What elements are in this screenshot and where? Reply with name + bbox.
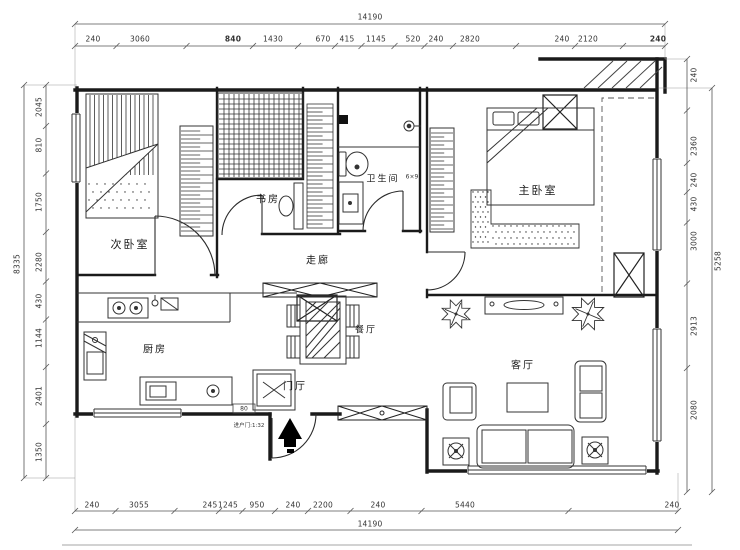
interior-walls [77, 88, 657, 297]
bed-master [487, 108, 594, 205]
floor-plan-page: 次卧室书房卫生间主卧室走廊餐厅厨房门厅客厅进户门:1:32806×9141902… [0, 0, 740, 550]
shoe-cabinet [338, 406, 427, 420]
wardrobe-master [430, 128, 454, 232]
door-master-bedroom [427, 252, 465, 290]
window-bottom-kitchen [93, 408, 182, 419]
floor-plan-drawing [0, 0, 740, 550]
living-furniture [443, 297, 608, 468]
bathroom-fixtures [338, 115, 421, 224]
curtain-dashed [602, 98, 656, 292]
kitchen-faucet-icon [152, 295, 158, 306]
study-desk [294, 183, 303, 229]
plant-left-icon [442, 300, 470, 328]
wardrobe-secondary [180, 126, 213, 236]
end-table-right [582, 437, 608, 464]
kitchen-fixtures [77, 293, 297, 410]
window-right-master [651, 158, 663, 251]
dim-80-box [233, 404, 255, 413]
side-sofa [575, 361, 606, 422]
shower-head-icon [404, 121, 421, 131]
coffee-table [507, 383, 548, 412]
study-chair [279, 196, 293, 216]
window-right-living [651, 328, 663, 442]
fridge-icon [253, 370, 295, 410]
entry-arrow-icon [278, 418, 302, 453]
dining-table [300, 296, 346, 364]
end-table-left [443, 438, 469, 465]
laundry-basin-icon [84, 332, 106, 380]
plant-right-icon [572, 298, 603, 329]
door-study [222, 195, 262, 235]
walkin-closet [218, 93, 303, 178]
toilet-icon [339, 152, 368, 176]
window-bottom-living [467, 465, 647, 477]
columns [297, 95, 644, 321]
column-right [614, 253, 644, 297]
dining-chairs [287, 305, 359, 358]
floor-drain-icon [339, 115, 348, 124]
door-bathroom [363, 191, 403, 231]
door-secondary-bedroom [155, 216, 215, 276]
column-top-right [543, 95, 577, 129]
window-left-bedroom [71, 113, 82, 183]
stove-icon [108, 298, 148, 318]
balcony-hatch [584, 61, 662, 88]
kitchen-low-cabinet [140, 377, 232, 405]
extension-lines [24, 24, 712, 511]
main-sofa [477, 425, 574, 468]
tv-cabinet [485, 297, 563, 314]
column-kitchen [297, 295, 337, 321]
sink-icon [339, 182, 363, 224]
kitchen-sink-icon [161, 298, 178, 310]
armchair [443, 383, 476, 420]
